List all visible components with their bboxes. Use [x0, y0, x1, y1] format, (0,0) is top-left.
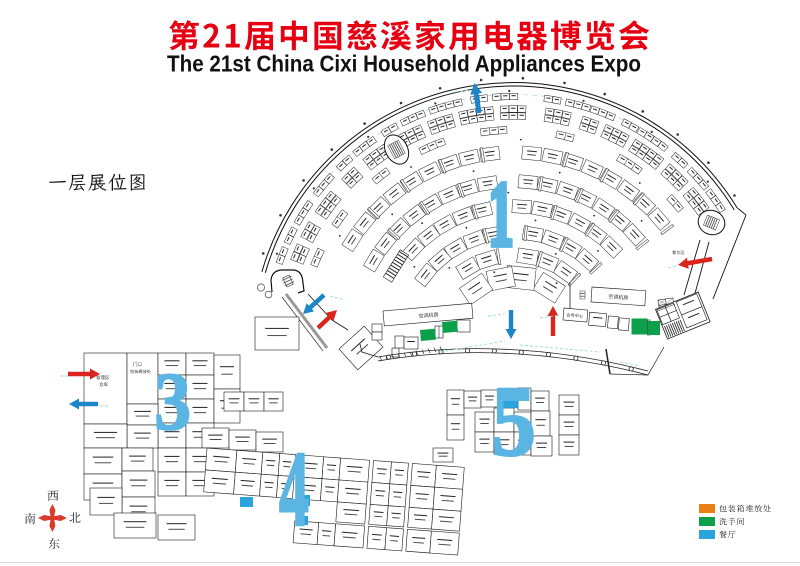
svg-text:3: 3 — [154, 355, 191, 447]
svg-text:The 21st China Cixi Household: The 21st China Cixi Household Appliances… — [167, 51, 641, 77]
svg-text:4: 4 — [279, 430, 309, 549]
svg-text:1: 1 — [488, 165, 513, 266]
svg-text:5: 5 — [491, 365, 536, 477]
